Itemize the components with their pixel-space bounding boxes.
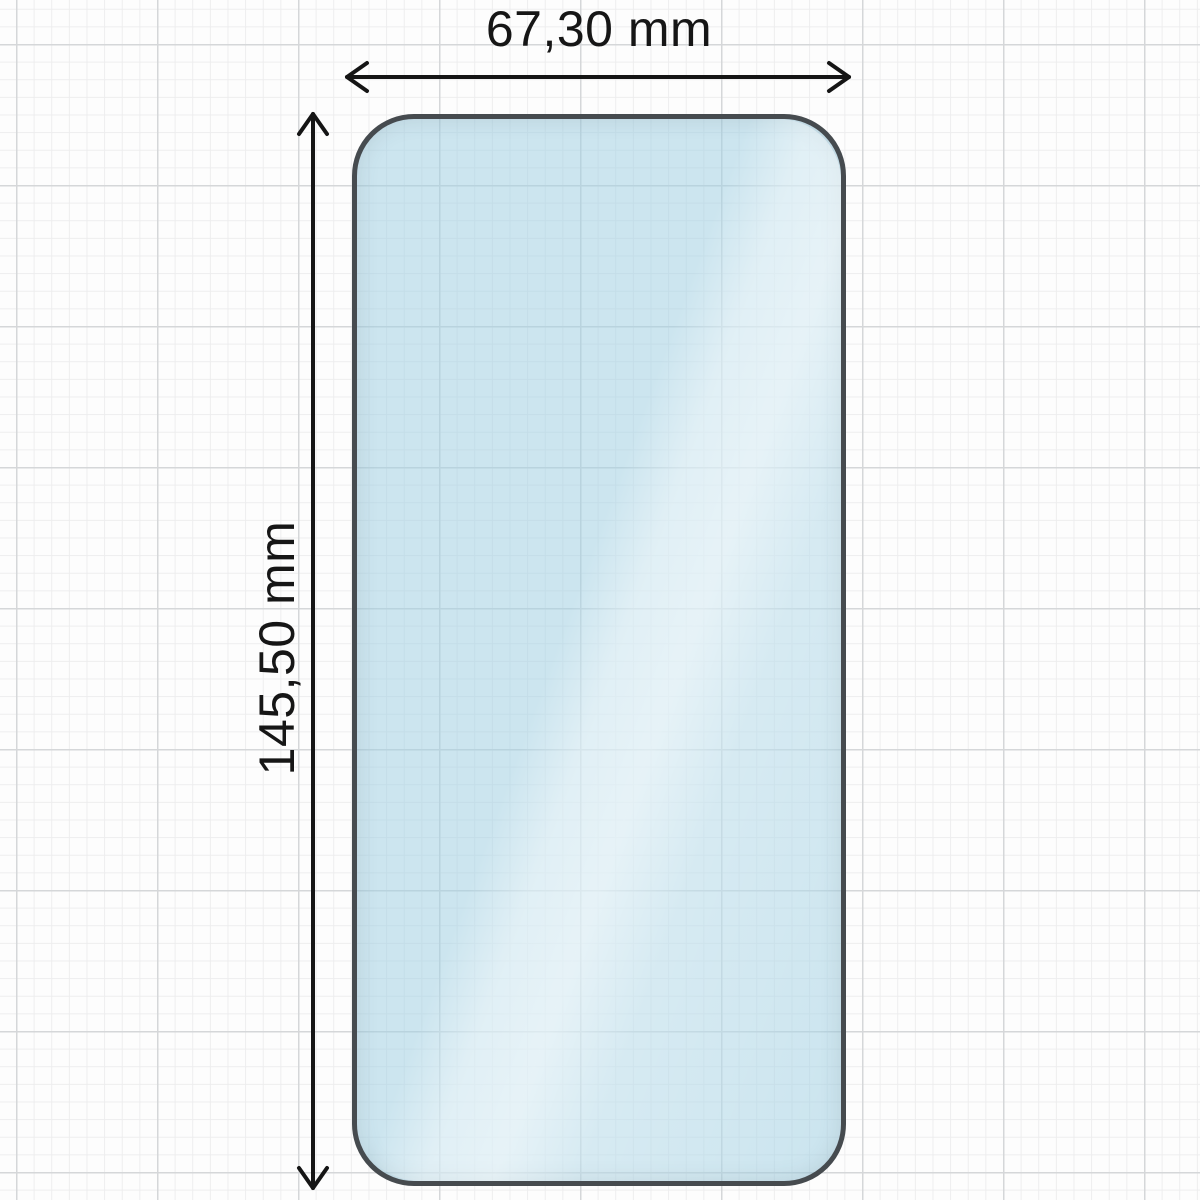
screen-protector-glass [352,114,846,1186]
width-dimension-label: 67,30 mm [486,0,712,58]
glass-glare [357,119,841,1181]
width-dimension-arrow-icon [347,63,849,91]
diagram-canvas: 67,30 mm 145,50 mm [0,0,1200,1200]
height-dimension-label: 145,50 mm [248,521,306,776]
